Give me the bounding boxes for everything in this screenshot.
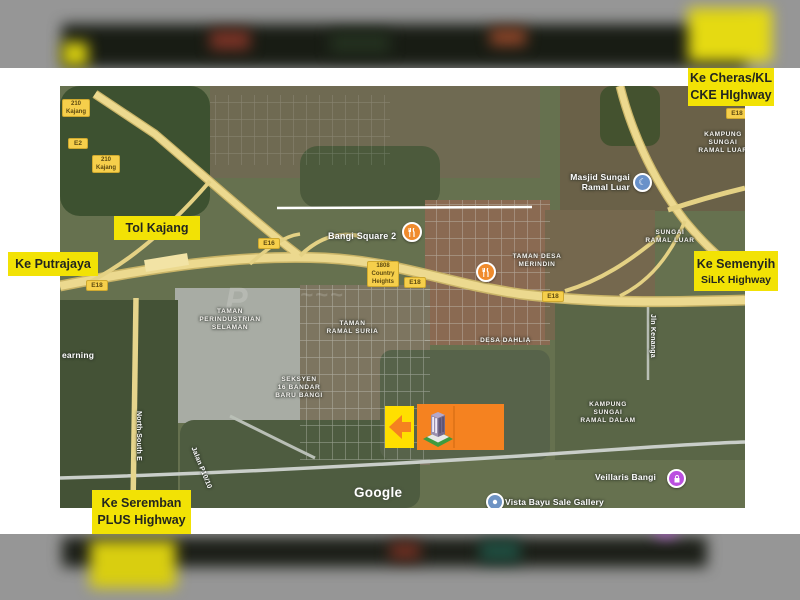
label-ke-semenyih: Ke Semenyih SiLK Highway — [694, 251, 778, 291]
restaurant-icon — [402, 222, 422, 242]
blurred-bottom-blob-teal — [480, 540, 520, 562]
place-taman-perindustrian: TAMAN PERINDUSTRIAN SELAMAN — [196, 308, 264, 332]
label-line: RAMAL DALAM — [578, 417, 638, 425]
label-line: Ke Cheras/KL — [688, 70, 774, 87]
place-kampung-sungai-ramal-dalam: KAMPUNG SUNGAI RAMAL DALAM — [578, 401, 638, 425]
shield-e18-d: E18 — [86, 280, 108, 291]
blurred-top-blob-red2 — [490, 28, 526, 46]
label-line: MERINDIN — [508, 261, 566, 269]
place-taman-desa-merindin: TAMAN DESA MERINDIN — [508, 253, 566, 269]
label-line: 1808 — [370, 262, 396, 270]
label-line: SUNGAI — [692, 139, 745, 147]
place-bangi-square: Bangi Square 2 — [328, 231, 408, 241]
place-masjid: Masjid Sungai Ramal Luar — [555, 172, 630, 192]
shield-210-kajang-1: 210 Kajang — [62, 99, 90, 117]
arrow-left-icon — [388, 414, 412, 440]
label-tol-kajang: Tol Kajang — [114, 216, 200, 240]
label-line: 16 BANDAR — [270, 384, 328, 392]
watermark-script: ~~~ — [300, 282, 345, 308]
place-kampung-sungai-ramal-luar: KAMPUNG SUNGAI RAMAL LUAR — [692, 131, 745, 155]
shield-e18-a: E18 — [404, 277, 426, 288]
label-line: Ke Semenyih — [694, 256, 778, 273]
place-earning: earning — [62, 350, 94, 360]
label-ke-cheras: Ke Cheras/KL CKE HIghway — [688, 68, 774, 106]
label-line: TAMAN DESA — [508, 253, 566, 261]
label-line: SUNGAI — [578, 409, 638, 417]
label-line: KAMPUNG — [692, 131, 745, 139]
label-line: 210 — [95, 156, 117, 164]
blurred-bottom-yellow-label — [90, 540, 176, 588]
label-line: 210 — [65, 100, 87, 108]
label-line: RAMAL SURIA — [325, 328, 380, 336]
label-line: Heights — [370, 278, 396, 286]
shield-e2: E2 — [68, 138, 88, 149]
restaurant-icon — [476, 262, 496, 282]
label-ke-putrajaya: Ke Putrajaya — [8, 252, 98, 276]
label-line: RAMAL LUAR — [638, 237, 702, 245]
place-vista-bayu: Vista Bayu Sale Gallery — [505, 497, 615, 507]
road-label-north-south: North-South E — [135, 411, 142, 461]
label-line: CKE HIghway — [688, 87, 774, 104]
label-line: Masjid Sungai — [555, 172, 630, 182]
marker-divider — [453, 406, 455, 448]
slide-canvas: P ~~~ KAMPUNG SUNGAI RAMAL LUAR Masjid S… — [0, 68, 800, 534]
shield-e18-b: E18 — [542, 291, 564, 302]
shield-210-kajang-2: 210 Kajang — [92, 155, 120, 173]
place-seksyen-16: SEKSYEN 16 BANDAR BARU BANGI — [270, 376, 328, 400]
label-line: SELAMAN — [196, 324, 264, 332]
marker-highlight-box — [417, 404, 504, 450]
label-line: Ke Seremban — [92, 495, 191, 512]
place-taman-ramal-suria: TAMAN RAMAL SURIA — [325, 320, 380, 336]
label-line: BARU BANGI — [270, 392, 328, 400]
marker-arrow-box — [385, 406, 414, 448]
label-line: SEKSYEN — [270, 376, 328, 384]
label-line: TAMAN — [196, 308, 264, 316]
label-line: Ramal Luar — [555, 182, 630, 192]
label-line: Kajang — [95, 164, 117, 172]
blurred-top-yellow-small — [62, 42, 88, 66]
label-line: PLUS Highway — [92, 512, 191, 529]
blurred-top-blob-red1 — [210, 30, 250, 50]
label-line: RAMAL LUAR — [692, 147, 745, 155]
blurred-top-blob-green — [330, 32, 390, 54]
label-line: KAMPUNG — [578, 401, 638, 409]
label-line: SiLK Highway — [694, 273, 778, 287]
label-line: TAMAN — [325, 320, 380, 328]
shield-e18-c: E18 — [726, 108, 745, 119]
blurred-top-yellow-label — [688, 8, 772, 62]
building-icon — [421, 407, 455, 447]
label-line: Kajang — [65, 108, 87, 116]
place-desa-dahlia: DESA DAHLIA — [478, 337, 533, 345]
label-line: PERINDUSTRIAN — [196, 316, 264, 324]
gallery-icon — [486, 493, 504, 508]
label-line: Country — [370, 270, 396, 278]
label-ke-seremban: Ke Seremban PLUS Highway — [92, 490, 191, 534]
shield-1808-country-heights: 1808 Country Heights — [367, 261, 399, 287]
blurred-top-map — [62, 24, 746, 68]
shopping-bag-icon — [667, 469, 686, 488]
google-watermark: Google — [354, 485, 402, 500]
label-line: SUNGAI — [638, 229, 702, 237]
place-sungai-ramal-luar: SUNGAI RAMAL LUAR — [638, 229, 702, 245]
blurred-bottom-blob-red — [390, 542, 420, 560]
mosque-icon: ☾ — [633, 173, 652, 192]
shield-e16: E16 — [258, 238, 280, 249]
place-veillaris-bangi: Veillaris Bangi — [595, 472, 667, 482]
road-label-jln-kenanga: Jln Kenanga — [649, 314, 656, 358]
